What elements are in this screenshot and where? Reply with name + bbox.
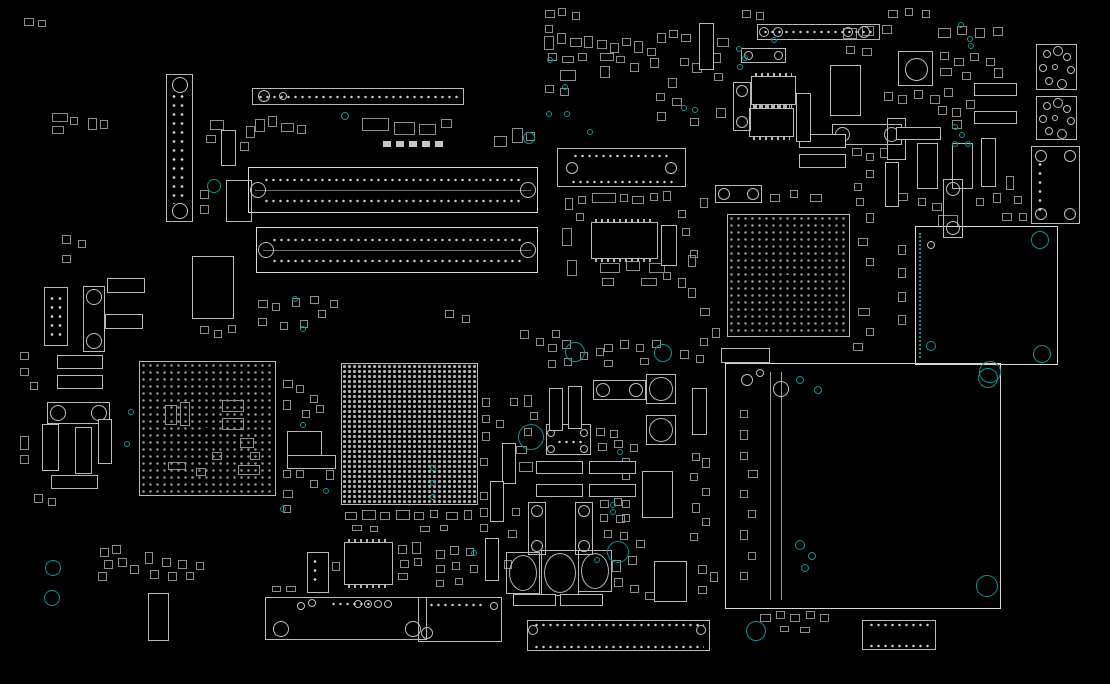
small-part — [656, 93, 665, 101]
small-part — [246, 126, 255, 138]
small-part — [884, 92, 893, 101]
component-ce8209 — [560, 594, 603, 606]
small-part — [480, 458, 488, 466]
small-part — [420, 526, 430, 532]
small-part — [634, 41, 643, 53]
mount-hole — [258, 90, 270, 102]
small-part — [565, 198, 573, 210]
small-part — [626, 261, 640, 271]
small-part — [690, 473, 698, 481]
drill-hole — [587, 129, 593, 135]
small-part — [657, 112, 666, 121]
small-part — [622, 38, 631, 46]
small-part — [520, 330, 529, 339]
small-part — [993, 27, 1003, 36]
drill-hole — [430, 494, 436, 500]
small-part — [630, 63, 639, 72]
mount-hole — [858, 26, 870, 38]
small-part — [316, 405, 324, 413]
small-part — [914, 90, 923, 99]
small-part — [938, 28, 951, 38]
component-u8400 — [287, 431, 322, 458]
small-part — [898, 268, 906, 278]
small-part — [650, 58, 659, 68]
drill-hole — [518, 424, 544, 450]
drill-hole — [952, 124, 958, 130]
small-part — [445, 310, 454, 318]
drill-hole — [292, 296, 298, 302]
small-part — [688, 255, 696, 267]
component-c8301 — [646, 374, 676, 404]
drill-hole — [742, 55, 748, 61]
small-part — [370, 526, 378, 532]
drill-hole — [737, 64, 743, 70]
small-part — [130, 565, 139, 574]
drill-hole — [771, 37, 777, 43]
drill-hole — [968, 43, 974, 49]
component-x0501 — [661, 225, 677, 266]
pin-column — [48, 294, 64, 338]
small-part — [592, 193, 616, 203]
small-part — [952, 108, 961, 117]
small-part — [657, 33, 666, 43]
component-u0601 — [341, 363, 478, 505]
small-part — [519, 462, 533, 472]
small-part — [810, 194, 822, 202]
drill-hole — [128, 409, 134, 415]
small-part — [610, 430, 618, 438]
component-con1401 — [256, 227, 538, 273]
small-part — [930, 95, 940, 104]
drill-hole — [736, 46, 742, 52]
component-u0501 — [591, 222, 658, 259]
small-part — [756, 12, 764, 20]
small-part — [578, 53, 587, 61]
small-part — [560, 70, 576, 81]
small-part — [20, 368, 29, 376]
small-part — [922, 10, 930, 18]
component-ce8004 — [98, 419, 112, 464]
small-part — [214, 330, 222, 338]
small-part — [283, 490, 293, 498]
small-part — [940, 52, 949, 60]
small-part — [702, 488, 710, 496]
small-part — [866, 328, 874, 336]
component-u0201 — [139, 361, 276, 496]
component-c8201 — [541, 550, 579, 596]
component-c8202 — [506, 552, 540, 594]
small-part — [614, 440, 623, 448]
small-part — [240, 142, 249, 151]
pin-row — [428, 602, 483, 608]
small-part — [853, 343, 863, 351]
drill-hole — [607, 541, 629, 563]
small-part — [496, 420, 504, 428]
component-ce8201 — [536, 461, 583, 474]
drill-hole — [976, 575, 998, 597]
small-part — [283, 400, 291, 410]
drill-hole — [471, 550, 477, 556]
small-part — [602, 278, 614, 286]
small-part — [548, 344, 557, 352]
small-part — [688, 288, 696, 298]
component-ce3600 — [485, 538, 499, 581]
small-part — [716, 108, 726, 118]
small-part — [905, 8, 913, 16]
small-part — [780, 626, 789, 632]
mount-hole — [843, 27, 853, 37]
component-ce8400 — [287, 455, 336, 469]
small-part — [918, 198, 926, 206]
mount-hole — [528, 625, 538, 635]
small-part — [962, 72, 971, 80]
small-part — [480, 492, 488, 500]
small-part — [632, 196, 644, 204]
component-l8200 — [575, 502, 593, 555]
component-l8300 — [593, 380, 646, 400]
component-c8300 — [646, 415, 676, 445]
component-c8006 — [75, 427, 92, 474]
small-part — [283, 470, 291, 478]
small-part — [20, 352, 29, 360]
component-ce8800 — [796, 93, 811, 142]
mount-hole — [520, 182, 536, 198]
drill-hole — [1031, 231, 1049, 249]
small-part — [464, 510, 472, 520]
small-part — [600, 53, 614, 61]
small-part — [700, 308, 710, 316]
small-part — [604, 344, 613, 352]
small-part — [545, 25, 553, 33]
small-part — [283, 380, 293, 388]
component-ce8206 — [536, 484, 583, 497]
small-part — [866, 258, 874, 266]
component-c8035 — [105, 314, 143, 329]
component-ce2201 — [974, 83, 1017, 96]
pin-row — [572, 153, 672, 159]
small-part — [702, 458, 710, 468]
small-part — [178, 560, 187, 569]
component-u3402 — [654, 561, 687, 602]
small-part — [682, 228, 690, 236]
small-part — [790, 614, 800, 622]
small-part — [578, 196, 586, 204]
small-part — [409, 141, 417, 147]
small-part — [326, 470, 334, 480]
mount-hole — [759, 27, 769, 37]
small-part — [100, 120, 108, 129]
small-part — [604, 530, 612, 538]
small-part — [296, 385, 304, 393]
small-part — [866, 170, 874, 178]
small-part — [806, 611, 815, 619]
component-ce8001 — [51, 475, 98, 489]
component-ce8301 — [568, 386, 582, 429]
component-ce8300 — [692, 388, 707, 435]
small-part — [383, 141, 391, 147]
mount-hole — [1064, 150, 1076, 162]
small-part — [196, 562, 204, 570]
pin-column — [170, 92, 188, 204]
mount-hole — [250, 182, 266, 198]
drill-hole — [959, 132, 965, 138]
small-part — [640, 358, 649, 365]
small-part — [854, 183, 862, 191]
small-part — [1019, 213, 1027, 221]
mount-hole — [580, 445, 588, 453]
small-part — [1002, 213, 1012, 221]
small-part — [852, 148, 862, 156]
small-part — [700, 198, 708, 208]
small-part — [104, 560, 113, 569]
small-part — [1006, 176, 1014, 190]
component-u2401 — [192, 256, 234, 319]
drill-hole — [430, 465, 436, 471]
drill-hole — [547, 57, 553, 63]
small-part — [866, 213, 874, 223]
small-part — [462, 315, 470, 323]
mount-hole — [405, 621, 421, 637]
component-ce8100 — [885, 162, 899, 207]
small-part — [888, 10, 898, 18]
drill-hole — [323, 488, 329, 494]
mount-hole — [741, 374, 753, 386]
pin-row — [330, 601, 370, 607]
drill-hole — [546, 111, 552, 117]
small-part — [162, 558, 171, 567]
drill-hole — [617, 449, 623, 455]
component-con2301 — [1036, 96, 1077, 140]
drill-hole — [1033, 345, 1051, 363]
mount-hole — [773, 27, 783, 37]
small-part — [150, 570, 159, 579]
small-part — [436, 550, 445, 559]
pin-column — [1036, 160, 1044, 216]
small-part — [698, 565, 707, 574]
small-part — [598, 443, 607, 451]
mount-hole — [421, 627, 433, 639]
small-part — [98, 572, 107, 581]
small-part — [622, 514, 630, 522]
pin-row — [556, 439, 582, 445]
small-part — [310, 480, 318, 488]
small-part — [596, 428, 605, 436]
small-part — [668, 78, 677, 88]
mount-hole — [297, 602, 305, 610]
small-part — [510, 398, 518, 406]
component-ce2803 — [221, 130, 236, 166]
small-part — [512, 508, 520, 516]
mount-hole — [279, 92, 287, 100]
component-label — [785, 275, 793, 277]
small-part — [380, 512, 390, 520]
small-part — [636, 540, 645, 548]
small-part — [545, 10, 555, 18]
small-part — [596, 348, 604, 356]
small-part — [620, 340, 629, 349]
small-part — [435, 141, 443, 147]
drill-hole — [45, 560, 61, 576]
mount-hole — [384, 600, 392, 608]
mount-hole — [580, 429, 588, 437]
small-part — [898, 315, 906, 325]
small-part — [20, 436, 29, 450]
small-part — [530, 412, 538, 420]
drill-hole — [300, 326, 306, 332]
drill-hole — [795, 540, 805, 550]
mount-hole — [927, 241, 935, 249]
drill-hole — [746, 621, 766, 641]
mount-hole — [374, 600, 382, 608]
small-part — [882, 25, 892, 34]
pcb-boardview-canvas — [0, 0, 1110, 684]
drill-hole — [610, 502, 616, 508]
small-part — [567, 260, 577, 276]
small-part — [650, 193, 658, 201]
component-ce8801 — [699, 23, 714, 70]
small-part — [576, 213, 584, 221]
small-part — [702, 518, 710, 526]
drill-hole — [300, 422, 306, 428]
small-part — [604, 360, 613, 367]
small-part — [557, 33, 566, 44]
small-part — [846, 46, 855, 54]
component-c8802 — [751, 76, 796, 105]
small-part — [572, 12, 580, 20]
drill-hole — [808, 552, 816, 560]
component-label — [406, 433, 414, 435]
small-part — [700, 338, 708, 346]
small-part — [310, 296, 319, 304]
small-part — [100, 548, 109, 557]
drill-hole — [610, 509, 616, 515]
drill-hole — [207, 179, 221, 193]
small-part — [940, 68, 952, 76]
drill-hole — [967, 36, 973, 42]
small-part — [272, 586, 281, 592]
component-con1202 — [862, 620, 936, 650]
small-part — [200, 326, 209, 334]
component-ce8007 — [57, 355, 103, 369]
small-part — [414, 512, 424, 520]
small-part — [436, 580, 444, 587]
mount-hole — [696, 625, 706, 635]
component-ce8205 — [589, 461, 636, 474]
small-part — [70, 117, 78, 125]
small-part — [776, 611, 785, 619]
small-part — [630, 444, 638, 452]
small-part — [332, 562, 340, 571]
drill-hole — [523, 132, 535, 144]
small-part — [614, 578, 623, 587]
component-ce2001 — [721, 348, 770, 363]
mount-hole — [665, 162, 677, 174]
component-u2101 — [898, 51, 933, 86]
small-part — [482, 398, 490, 407]
pin-column — [311, 557, 319, 587]
drill-hole — [814, 386, 822, 394]
small-part — [548, 360, 556, 368]
small-part — [717, 38, 729, 47]
small-part — [52, 113, 68, 122]
small-part — [790, 190, 798, 198]
small-part — [30, 382, 38, 390]
small-part — [398, 545, 407, 554]
component-ce8106 — [799, 154, 846, 168]
drill-hole — [692, 107, 698, 113]
mount-hole — [172, 77, 188, 93]
component-label — [204, 428, 212, 430]
drill-hole — [280, 506, 286, 512]
small-part — [710, 572, 718, 582]
small-part — [544, 36, 554, 50]
small-part — [440, 525, 448, 531]
small-part — [480, 524, 488, 532]
small-part — [600, 66, 610, 78]
small-part — [296, 470, 304, 478]
small-part — [78, 240, 86, 248]
small-part — [970, 53, 979, 61]
small-part — [302, 410, 310, 418]
component-q8004 — [42, 424, 59, 471]
small-part — [862, 48, 872, 56]
small-part — [450, 546, 459, 555]
small-part — [1014, 196, 1022, 204]
small-part — [866, 153, 874, 161]
small-part — [330, 300, 338, 308]
small-part — [562, 228, 572, 246]
component-ce8208 — [513, 594, 556, 606]
small-part — [396, 141, 404, 147]
small-part — [600, 500, 609, 508]
small-part — [954, 58, 964, 66]
small-part — [663, 191, 671, 201]
component-l8001 — [83, 286, 105, 352]
component-ce8204 — [589, 484, 636, 497]
small-part — [641, 278, 657, 286]
drill-hole — [44, 590, 60, 606]
small-part — [672, 98, 682, 106]
small-part — [616, 56, 625, 63]
drill-hole — [564, 111, 570, 117]
small-part — [800, 627, 810, 633]
small-part — [647, 48, 656, 56]
component-u3501 — [344, 542, 393, 585]
drill-hole — [681, 105, 687, 111]
component-q8103 — [917, 143, 938, 189]
mount-hole — [547, 445, 555, 453]
drill-hole — [801, 564, 809, 572]
small-part — [986, 58, 995, 66]
small-part — [62, 235, 71, 244]
component-con2202 — [1036, 44, 1077, 90]
small-part — [690, 533, 698, 541]
small-part — [48, 498, 56, 506]
small-part — [858, 308, 870, 316]
small-part — [696, 355, 704, 363]
small-part — [394, 122, 415, 135]
drill-hole — [926, 341, 936, 351]
small-part — [620, 532, 628, 540]
small-part — [62, 255, 71, 263]
small-part — [610, 43, 619, 53]
small-part — [297, 125, 306, 134]
small-part — [552, 330, 560, 338]
small-part — [228, 325, 236, 333]
small-part — [681, 34, 691, 42]
component-ce0802 — [502, 443, 516, 484]
small-part — [690, 118, 699, 126]
